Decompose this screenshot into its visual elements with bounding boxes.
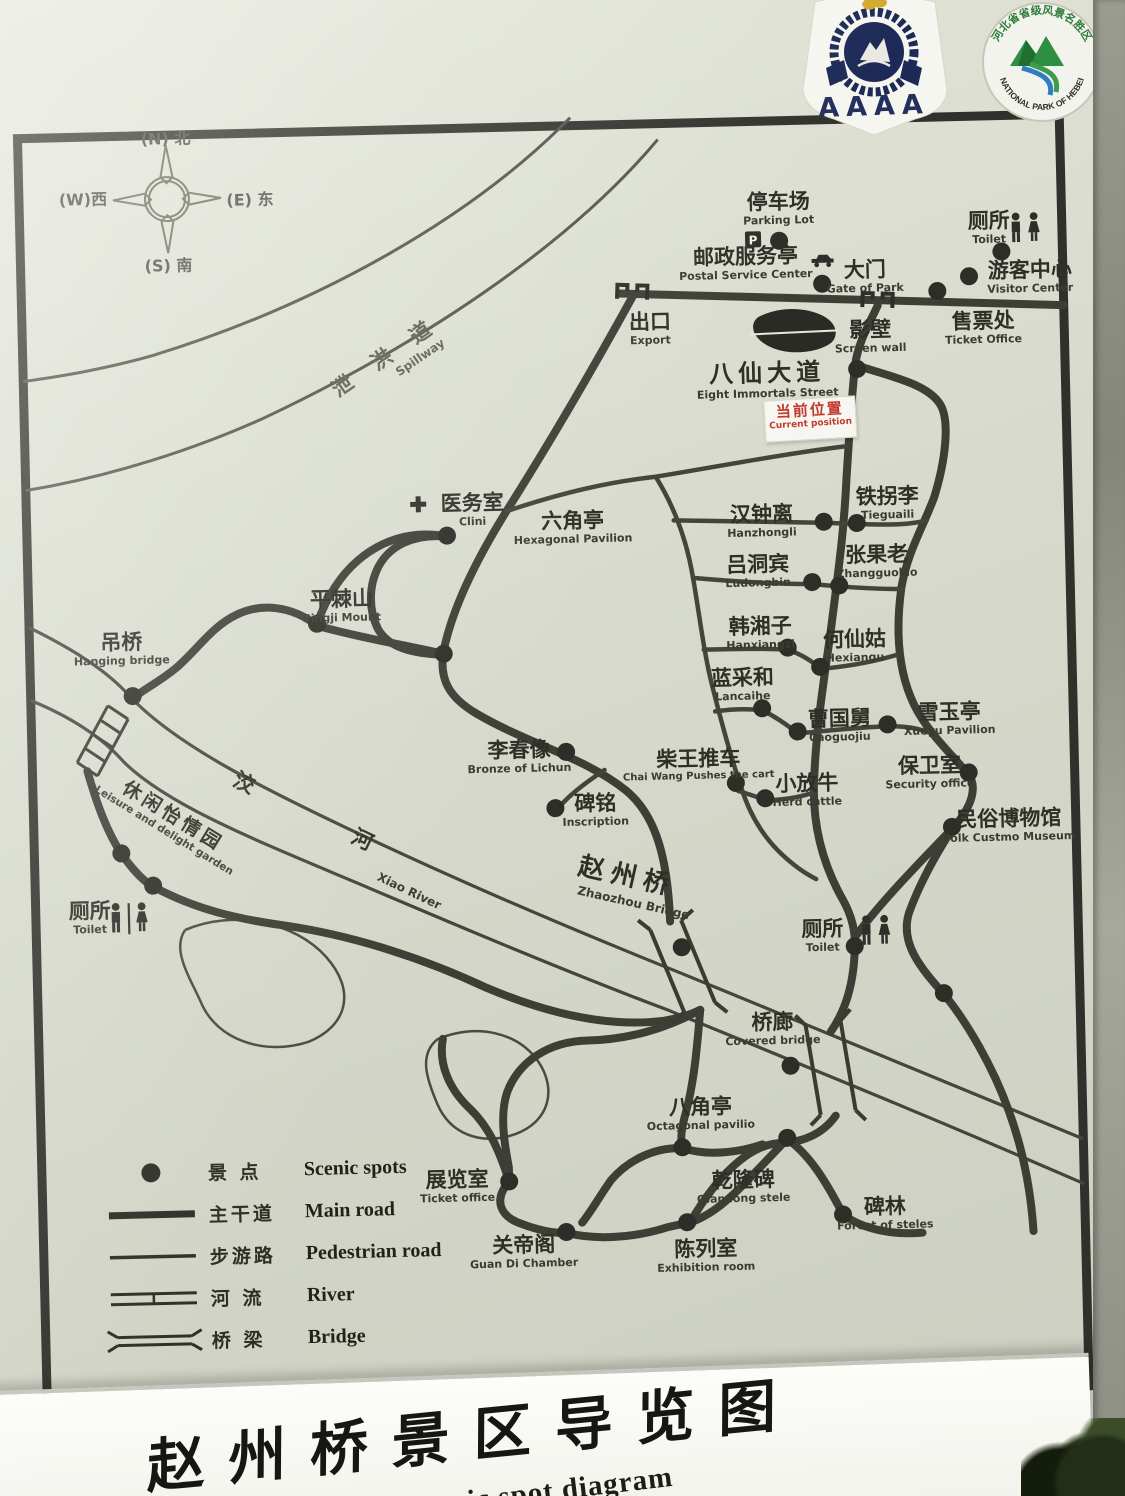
spot-label-cn: 停车场 (742, 190, 814, 214)
map-line (880, 915, 888, 923)
spot-label-cn: 张果老 (836, 543, 917, 568)
spot-label-cn: 吕洞宾 (725, 553, 791, 577)
spot-label-cn: 八仙大道 (696, 359, 838, 388)
spot-label-cn: 韩湘子 (726, 615, 795, 639)
map-line (112, 923, 115, 933)
spot-label-guandi: 关帝阁Guan Di Chamber (469, 1233, 578, 1271)
man-icon (1011, 213, 1020, 243)
spot-label-cn: 医务室 (440, 491, 504, 515)
scenic-spot-dot (435, 645, 453, 663)
spot-label-cn: 平棘山 (302, 587, 381, 612)
aaaa-badge: AAAA (793, 0, 955, 142)
spot-label-display: 陈列室Exhibition room (657, 1237, 756, 1275)
spot-label-cn: 汉钟离 (727, 502, 797, 526)
current-position-marker: 当前位置 Current position (763, 395, 857, 442)
map-line (138, 902, 146, 910)
map-line (1017, 232, 1020, 242)
legend-label-en: Scenic spots (304, 1155, 407, 1180)
map-line (139, 922, 142, 931)
map-line (149, 181, 186, 218)
spot-label-qianlong: 乾隆碑Qian long stele (696, 1168, 790, 1206)
map-line (434, 295, 670, 927)
spot-label-chaiwang: 柴王推车Chai Wang Pushes the cart (622, 746, 774, 784)
spot-label-cn: 何仙姑 (823, 627, 887, 651)
zhaozhou-bridge-symbol (638, 909, 728, 1023)
compass-north-label: (N) 北 (140, 125, 190, 150)
spot-label-cn: 雪玉亭 (903, 700, 995, 725)
scenic-spot-dot (803, 573, 821, 591)
map-line (1012, 232, 1015, 242)
legend-label-cn: 河 流 (211, 1282, 308, 1311)
legend-label-cn: 主干道 (209, 1198, 306, 1227)
man-icon (862, 915, 871, 945)
legend-symbol-dot (95, 1153, 208, 1192)
hanging-bridge-symbol (76, 705, 130, 776)
man-icon (111, 903, 120, 933)
woman-icon (136, 902, 148, 931)
spot-label-cn: 售票处 (944, 309, 1021, 333)
map-line (112, 912, 121, 923)
spot-label-en: Octagonal pavilio (647, 1118, 755, 1132)
spot-label-en: Toilet (968, 233, 1010, 246)
pond-outlines (180, 913, 550, 1146)
map-line (17, 118, 576, 382)
spot-label-covered: 桥廊Covered bridge (725, 1010, 821, 1048)
scenic-spot-dot (846, 937, 864, 955)
compass-rose (112, 144, 223, 255)
scenic-spot-dot (878, 715, 896, 733)
spot-label-lancaihe: 蓝采和Lancaihe (711, 666, 775, 703)
spot-label-en: Bronze of Lichun (467, 761, 571, 775)
spot-label-cn: 乾隆碑 (696, 1168, 790, 1193)
spot-label-hanzhongli: 汉钟离Hanzhongli (727, 502, 797, 539)
sign-edge-strip (1093, 0, 1125, 1496)
spot-label-cn: 桥廊 (725, 1010, 821, 1035)
spot-label-cn: 小放牛 (772, 771, 842, 795)
legend-symbol-pedestrian (97, 1237, 210, 1276)
spot-label-herd: 小放牛Herd cattle (772, 771, 842, 808)
map-line (18, 140, 666, 491)
legend-label-cn: 桥 梁 (212, 1324, 309, 1353)
spot-label-en: Ludongbin (725, 576, 791, 589)
foliage-corner (1021, 1418, 1125, 1496)
spot-label-en: Screen wall (835, 341, 907, 355)
spot-label-cn: 李春像 (467, 738, 571, 763)
spot-label-en: Hanxiangzi (726, 638, 795, 651)
legend-label-cn: 步游路 (210, 1240, 307, 1269)
map-line (1030, 212, 1038, 220)
spot-label-toilet-right: 厕所Toilet (801, 917, 844, 954)
map-line (1028, 221, 1040, 232)
map-line (143, 922, 146, 931)
spot-label-en: Guan Di Chamber (470, 1256, 578, 1270)
spot-label-cn: 陈列室 (657, 1237, 756, 1262)
spot-label-street: 八仙大道Eight Immortals Street (696, 359, 839, 401)
spot-label-clinic: 医务室Clini (440, 491, 504, 528)
legend-symbol-river (98, 1279, 211, 1318)
map-line (881, 935, 884, 944)
spot-label-toilet-left: 厕所Toilet (68, 900, 111, 937)
spot-label-cn: 邮政服务亭 (678, 244, 812, 270)
map-line (862, 924, 871, 935)
spot-label-folk-museum: 民俗博物馆Folk Custmo Museum (942, 806, 1075, 845)
map-line (867, 935, 870, 945)
spot-label-en: Export (629, 334, 671, 347)
spot-label-exit: 出口Export (629, 310, 672, 347)
spot-label-octagonal: 八角亭Octagonal pavilio (646, 1095, 755, 1133)
spot-label-stele: 碑林Forest of steles (836, 1194, 933, 1232)
spot-label-lichun: 李春像Bronze of Lichun (467, 738, 572, 776)
compass-west-label: (W)西 (58, 186, 107, 211)
spot-label-ticket-office-top: 售票处Ticket Office (944, 309, 1022, 346)
map-line (109, 1214, 195, 1216)
spot-label-en: Covered bridge (725, 1034, 820, 1048)
spot-label-en: Parking Lot (743, 214, 814, 228)
spot-label-cn: 碑铭 (562, 791, 629, 815)
woman-icon (878, 915, 890, 944)
map-line (885, 935, 888, 944)
spot-label-cn: 曹国舅 (808, 707, 872, 731)
spot-label-pingji: 平棘山Pingji Mount (302, 587, 381, 624)
aaaa-rating-text: AAAA (818, 89, 931, 124)
scenic-spot-dot (928, 282, 946, 300)
map-line (136, 911, 148, 922)
map-line (1012, 221, 1021, 232)
map-line (567, 1223, 688, 1238)
spot-label-xueyu: 雪玉亭Xueyu Pavilion (903, 700, 995, 738)
spot-label-cn: 关帝阁 (469, 1233, 578, 1258)
spot-label-cn: 大门 (826, 258, 904, 282)
spot-label-caoguojiu: 曹国舅Caoguojiu (808, 707, 872, 744)
spot-label-en: Ticket Office (945, 333, 1022, 347)
map-line (369, 536, 449, 657)
spot-label-gate: 大门Gate of Park (826, 258, 904, 295)
spot-label-en: Qian long stele (697, 1191, 791, 1205)
map-line (117, 922, 120, 932)
spot-label-cn: 蓝采和 (711, 666, 775, 690)
map-line (118, 1344, 192, 1346)
spot-label-parking: 停车场Parking Lot (742, 190, 814, 227)
legend-label-en: River (307, 1283, 355, 1307)
legend-row-bridge: 桥 梁Bridge (99, 1313, 460, 1363)
spot-label-cn: 六角亭 (513, 508, 632, 533)
map-line (580, 1148, 685, 1223)
spot-label-en: Hanging bridge (74, 654, 170, 668)
spot-label-en: Herd cattle (772, 795, 842, 809)
spot-label-visitor: 游客中心Visitor Center (987, 258, 1074, 296)
legend-label-en: Bridge (308, 1324, 366, 1348)
spot-label-en: Visitor Center (987, 282, 1073, 296)
spot-label-en: Gate of Park (827, 282, 904, 296)
spot-label-cn: 民俗博物馆 (942, 806, 1075, 832)
map-line (108, 1330, 202, 1352)
spot-label-tieguaili: 铁拐李Tieguaili (855, 485, 919, 522)
map-line (1012, 213, 1020, 221)
map-line (118, 1336, 192, 1338)
scenic-spot-dot (438, 526, 456, 544)
scenic-spot-dot (815, 513, 833, 531)
legend-symbol-main (96, 1195, 209, 1234)
hebei-park-badge: 河北省省级风景名胜区 NATIONAL PARK OF HEBEI (980, 0, 1104, 124)
spillway-channel (17, 116, 665, 491)
car-wheel-icon (814, 262, 819, 267)
spot-label-hexagonal: 六角亭Hexagonal Pavilion (513, 508, 632, 546)
spot-label-en: Caoguojiu (808, 730, 871, 743)
map-line (904, 826, 1033, 1234)
woman-icon (1028, 212, 1040, 241)
legend-label-cn: 景 点 (208, 1156, 305, 1185)
spot-label-en: Xueyu Pavilion (904, 723, 996, 737)
spot-label-en: Forest of steles (837, 1218, 934, 1232)
map-line (787, 1138, 843, 1216)
spot-label-screen-wall: 影壁Screen wall (834, 318, 906, 355)
spot-label-hanging-bridge: 吊桥Hanging bridge (73, 630, 170, 668)
spot-label-cn: 柴王推车 (622, 746, 774, 772)
spot-label-en: Inscription (562, 815, 629, 828)
spot-label-cn: 影壁 (834, 318, 906, 342)
spot-label-cn: 厕所 (967, 209, 1010, 233)
spot-label-toilet-top: 厕所Toilet (967, 209, 1010, 246)
map-line (863, 935, 866, 945)
map-line (112, 903, 120, 911)
spot-label-cn: 吊桥 (73, 630, 169, 655)
spot-label-cn: 八角亭 (646, 1095, 755, 1120)
map-sign-photo: P 停车场Parking Lot邮政服务亭Postal Service Cent… (0, 0, 1125, 1496)
spot-label-cn: 游客中心 (987, 258, 1074, 283)
map-line (110, 1256, 196, 1258)
legend-label-en: Pedestrian road (306, 1238, 442, 1264)
spot-label-en: Pingji Mount (303, 611, 382, 625)
spot-label-en: Lancaihe (711, 690, 774, 703)
spot-label-cn: 保卫室 (885, 753, 975, 778)
spot-label-en: Exhibition room (657, 1260, 755, 1274)
spot-label-en: Toilet (69, 923, 111, 936)
spot-label-cn: 厕所 (801, 917, 844, 941)
spot-label-security: 保卫室Security office (885, 753, 975, 791)
spot-label-inscription: 碑铭Inscription (562, 791, 629, 828)
map-legend: 景 点Scenic spots主干道Main road步游路Pedestrian… (95, 1145, 460, 1363)
map-line (1035, 232, 1038, 241)
clinic-cross-icon (410, 496, 426, 512)
scenic-spot-dot (960, 267, 978, 285)
map-line (878, 924, 890, 935)
spot-label-cn: 出口 (629, 310, 672, 334)
spot-label-en: Tieguaili (856, 508, 919, 521)
legend-label-en: Main road (305, 1198, 396, 1223)
spot-label-cn: 铁拐李 (855, 485, 919, 509)
spot-label-hanxiangzi: 韩湘子Hanxiangzi (726, 615, 795, 652)
toilet-divider (128, 903, 131, 934)
hebei-badge-art: 河北省省级风景名胜区 NATIONAL PARK OF HEBEI (980, 0, 1104, 124)
legend-symbol-bridge (99, 1321, 212, 1360)
map-line (1031, 232, 1034, 241)
spot-label-en: Hexiangu (823, 651, 886, 664)
spot-label-en: Zhangguolao (836, 566, 917, 580)
spot-label-hexiangu: 何仙姑Hexiangu (823, 627, 887, 664)
map-line (141, 1163, 160, 1182)
spot-label-ludongbin: 吕洞宾Ludongbin (725, 553, 791, 590)
spot-label-zhangguolao: 张果老Zhangguolao (836, 543, 918, 580)
spot-label-cn: 碑林 (836, 1194, 933, 1219)
spot-label-en: Hanzhongli (727, 526, 797, 540)
compass-south-label: (S) 南 (144, 252, 192, 277)
spot-label-cn: 厕所 (68, 900, 111, 924)
compass-east-label: (E) 东 (226, 186, 274, 211)
spot-label-en: Clini (441, 515, 504, 528)
spot-label-en: Security office (885, 777, 974, 791)
scenic-spot-dot (788, 722, 806, 740)
spot-label-en: Toilet (802, 941, 844, 954)
map-tilt-wrapper: P 停车场Parking Lot邮政服务亭Postal Service Cent… (0, 0, 1125, 1496)
spot-label-postal: 邮政服务亭Postal Service Center (678, 244, 812, 283)
map-line (180, 917, 346, 1049)
